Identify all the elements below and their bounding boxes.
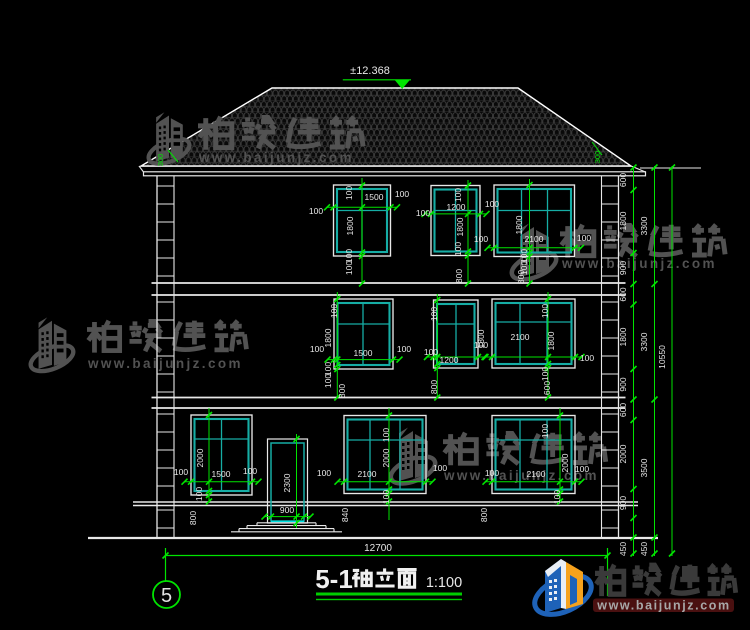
svg-text:1800: 1800 <box>546 331 556 350</box>
svg-text:900: 900 <box>280 505 294 515</box>
svg-text:2100: 2100 <box>525 234 544 244</box>
svg-text:800: 800 <box>188 511 198 525</box>
svg-text:2100: 2100 <box>358 469 377 479</box>
svg-text:100: 100 <box>243 466 257 476</box>
svg-text:100: 100 <box>552 490 562 504</box>
svg-text:3500: 3500 <box>639 458 649 477</box>
svg-text:10550: 10550 <box>657 345 667 369</box>
svg-text:600: 600 <box>618 403 628 417</box>
svg-text:1800: 1800 <box>345 216 355 235</box>
svg-text:100: 100 <box>194 487 204 501</box>
svg-text:100: 100 <box>174 467 188 477</box>
svg-text:800: 800 <box>337 384 347 398</box>
svg-text:100: 100 <box>485 199 499 209</box>
svg-text:2000: 2000 <box>618 444 628 463</box>
svg-text:800: 800 <box>516 270 526 284</box>
svg-text:900: 900 <box>618 496 628 510</box>
svg-text:100: 100 <box>381 490 391 504</box>
svg-text:100: 100 <box>485 468 499 478</box>
svg-text:1200: 1200 <box>447 202 466 212</box>
svg-text:100: 100 <box>424 347 438 357</box>
svg-text:100: 100 <box>344 186 354 200</box>
svg-text:www.baijunjz.com: www.baijunjz.com <box>87 356 243 371</box>
svg-text:900: 900 <box>618 261 628 275</box>
svg-text:100: 100 <box>453 188 463 202</box>
svg-text:1800: 1800 <box>618 327 628 346</box>
svg-text:100: 100 <box>397 344 411 354</box>
svg-text:800: 800 <box>429 380 439 394</box>
svg-text:100: 100 <box>474 340 488 350</box>
svg-text:900: 900 <box>618 377 628 391</box>
svg-text:600: 600 <box>542 381 552 395</box>
svg-text:www.baijunjz.com: www.baijunjz.com <box>561 256 717 271</box>
svg-text:1500: 1500 <box>365 192 384 202</box>
svg-text:100: 100 <box>429 307 439 321</box>
svg-text:100: 100 <box>474 234 488 244</box>
svg-text:100: 100 <box>540 424 550 438</box>
svg-text:2000: 2000 <box>195 448 205 467</box>
svg-text:100: 100 <box>540 304 550 318</box>
svg-text:100: 100 <box>317 468 331 478</box>
svg-text:100: 100 <box>540 367 550 381</box>
svg-text:1800: 1800 <box>455 217 465 236</box>
svg-text:100: 100 <box>381 428 391 442</box>
svg-text:www.baijunjz.com: www.baijunjz.com <box>596 599 730 613</box>
svg-text:2000: 2000 <box>381 448 391 467</box>
svg-text:±12.368: ±12.368 <box>350 65 390 77</box>
svg-text:600: 600 <box>618 173 628 187</box>
svg-text:800: 800 <box>479 508 489 522</box>
svg-text:100: 100 <box>416 208 430 218</box>
svg-text:840: 840 <box>340 508 350 522</box>
svg-text:100: 100 <box>395 189 409 199</box>
svg-text:100: 100 <box>323 374 333 388</box>
svg-text:5: 5 <box>161 585 172 607</box>
svg-text:1500: 1500 <box>354 348 373 358</box>
svg-text:100: 100 <box>344 261 354 275</box>
svg-text:1200: 1200 <box>440 355 459 365</box>
svg-text:100: 100 <box>433 463 447 473</box>
svg-text:1800: 1800 <box>323 328 333 347</box>
svg-text:2100: 2100 <box>527 469 546 479</box>
svg-text:600: 600 <box>618 287 628 301</box>
svg-text:100: 100 <box>577 233 591 243</box>
svg-text:1:100: 1:100 <box>426 575 462 591</box>
svg-text:300: 300 <box>156 154 165 167</box>
svg-text:100: 100 <box>309 206 323 216</box>
svg-text:100: 100 <box>453 242 463 256</box>
svg-text:100: 100 <box>329 304 339 318</box>
svg-text:1800: 1800 <box>514 215 524 234</box>
svg-text:450: 450 <box>639 542 649 556</box>
svg-text:5-1: 5-1 <box>315 564 353 594</box>
svg-text:1800: 1800 <box>618 211 628 230</box>
svg-text:3300: 3300 <box>639 332 649 351</box>
svg-text:2000: 2000 <box>560 453 570 472</box>
svg-text:800: 800 <box>454 269 464 283</box>
svg-text:12700: 12700 <box>364 543 392 554</box>
svg-text:450: 450 <box>618 542 628 556</box>
svg-text:3300: 3300 <box>639 216 649 235</box>
svg-text:1500: 1500 <box>212 469 231 479</box>
svg-text:100: 100 <box>580 353 594 363</box>
svg-text:2300: 2300 <box>282 473 292 492</box>
svg-text:100: 100 <box>575 464 589 474</box>
svg-text:2100: 2100 <box>511 332 530 342</box>
svg-text:www.baijunjz.com: www.baijunjz.com <box>198 150 354 165</box>
